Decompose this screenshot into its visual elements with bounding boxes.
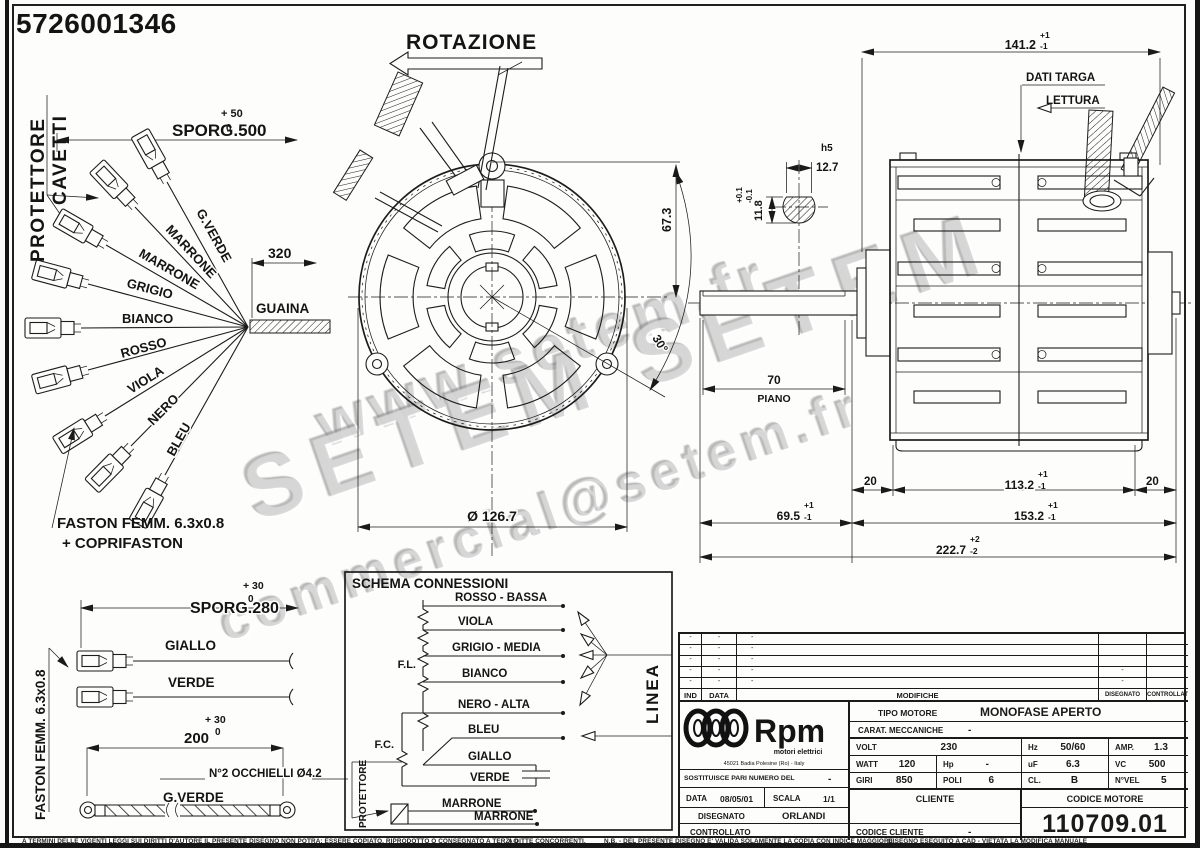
codice-motore-header: CODICE MOTORE [1022, 790, 1188, 808]
dim-70-text: 70 [767, 373, 781, 387]
lettura-label: LETTURA [1046, 95, 1100, 107]
footer-legal-4: DISEGNO ESEGUITO A CAD - VIETATA LA MODI… [888, 838, 1087, 845]
faston-note-1: FASTON FEMM. 6.3x0.8 [57, 515, 224, 532]
rev-cell: - [702, 667, 737, 678]
cl-cell: CL. B [1022, 773, 1109, 790]
logo-address: 45021 Badia Polesine (Ro) - Italy [724, 761, 805, 767]
sostituisce-cell: SOSTITUISCE PARI NUMERO DEL - [680, 770, 850, 788]
rev-cell: - [702, 656, 737, 667]
schema-fl: F.L. [398, 659, 416, 671]
rev-cell: - [1099, 667, 1147, 678]
cl-value: B [1041, 775, 1108, 786]
rev-header-controllato: CONTROLLATO [1147, 689, 1188, 702]
nvel-cell: N°VEL 5 [1109, 773, 1188, 790]
dim-sporg500: SPORG.500 + 50 0 [57, 108, 297, 152]
logo-cell: Rpm motori elettrici 45021 Badia Polesin… [680, 702, 850, 770]
cliente-label: CLIENTE [850, 790, 1020, 804]
codice-motore-value: 110709.01 [1022, 808, 1188, 839]
dim-200-tolm: 0 [215, 727, 221, 738]
dim-69-tolp: +1 [804, 500, 814, 510]
sporg500-tolp: + 50 [221, 108, 243, 120]
schema-protettore: PROTETTORE [358, 760, 369, 828]
rev-cell: - [680, 678, 702, 689]
schema-linea: LINEA [643, 663, 662, 724]
schema-nero: NERO - ALTA [458, 699, 530, 711]
wire-label-rosso: ROSSO [119, 334, 168, 361]
uf-label: uF [1022, 760, 1038, 769]
rev-header-data: DATA [702, 689, 737, 702]
disegnato-cell: DISEGNATO ORLANDI [680, 808, 850, 824]
sostituisce-label: SOSTITUISCE PARI NUMERO DEL [684, 775, 795, 782]
sostituisce-value: - [828, 774, 831, 785]
dim-20l-text: 20 [864, 476, 877, 488]
rotation-callout: ROTAZIONE [390, 31, 542, 75]
footer-legal-1: A TERMINI DELLE VIGENTI LEGGI SUI DIRITT… [22, 838, 518, 845]
rev-header-ind: IND [680, 689, 702, 702]
dati-targa-label: DATI TARGA [1026, 72, 1095, 84]
dim-222-tolp: +2 [970, 534, 980, 544]
schema-rosso: ROSSO - BASSA [455, 592, 547, 604]
rev-header-disegnato: DISEGNATO [1099, 689, 1147, 702]
wire-label-bianco: BIANCO [122, 311, 173, 326]
giri-label: GIRI [850, 776, 872, 785]
data-label: DATA [686, 794, 707, 803]
dim-141-tolm: -1 [1040, 41, 1048, 51]
dim-141-text: 141.2 [1005, 38, 1036, 52]
front-view [334, 62, 670, 556]
uf-cell: uF 6.3 [1022, 756, 1109, 773]
dim-200-tolp: + 30 [205, 714, 226, 726]
cl-label: CL. [1022, 776, 1041, 785]
scala-value: 1/1 [823, 794, 835, 804]
dim-222-tolm: -2 [970, 546, 978, 556]
sporg280-tolm: 0 [248, 594, 254, 605]
amp-value: 1.3 [1134, 742, 1188, 753]
giri-cell: GIRI 850 [850, 773, 937, 790]
schema-verde: VERDE [470, 772, 510, 784]
hz-cell: Hz 50/60 [1022, 739, 1109, 756]
rev-cell [1099, 656, 1147, 667]
rev-cell: - [737, 667, 1099, 678]
rev-cell: - [702, 634, 737, 645]
schema-fc: F.C. [374, 739, 394, 751]
footer-legal-2: A DITTE CONCORRENTI. [508, 838, 586, 845]
fit-h5-text: h5 [821, 143, 833, 154]
faston-note-2: + COPRIFASTON [62, 535, 183, 552]
rev-cell: - [737, 678, 1099, 689]
sporg500-tolm: 0 [226, 123, 232, 134]
scala-label: SCALA [773, 794, 801, 803]
rev-cell: - [702, 678, 737, 689]
rev-cell: - [737, 634, 1099, 645]
faston-note: FASTON FEMM. 6.3x0.8 + COPRIFASTON [52, 428, 224, 552]
drawing-sheet: www.setem.fr SETEM SETEM commercial@sete… [0, 0, 1200, 848]
uf-value: 6.3 [1038, 759, 1108, 770]
schema-bleu: BLEU [468, 724, 499, 736]
codice-cliente-value: - [968, 827, 971, 838]
nvel-value: 5 [1140, 775, 1188, 786]
rev-cell: - [737, 645, 1099, 656]
dim-153-text: 153.2 [1014, 509, 1044, 523]
piano-text: PIANO [757, 393, 790, 405]
dim-diameter: Ø 126.7 [358, 308, 627, 532]
rev-cell: - [680, 656, 702, 667]
sporg280-text: SPORG.280 [190, 600, 279, 617]
dim-30-text: 30° [649, 332, 671, 355]
title-block: - - - - - - - - - - - - - - - - - IND DA… [678, 632, 1186, 838]
watt-cell: WATT 120 [850, 756, 937, 773]
dim-69-text: 69.5 [777, 509, 801, 523]
rev-cell: - [680, 667, 702, 678]
data-cell: DATA 08/05/01 [680, 788, 765, 808]
dim-118-text: 11.8 [753, 200, 765, 221]
rotazione-label: ROTAZIONE [406, 31, 537, 54]
hz-value: 50/60 [1038, 742, 1108, 753]
dim-222-text: 222.7 [936, 543, 966, 557]
wire-label-nero: NERO [145, 391, 182, 428]
codice-motore-label: CODICE MOTORE [1022, 790, 1188, 804]
protettore-label: PROTETTORE [28, 118, 49, 263]
dim-113-text: 113.2 [1005, 478, 1035, 492]
wire-label-bleu: BLEU [164, 420, 194, 458]
disegnato-label: DISEGNATO [698, 812, 745, 821]
nvel-label: N°VEL [1109, 776, 1140, 785]
codice-motore-cell: 110709.01 [1022, 808, 1188, 840]
rev-cell [1147, 656, 1188, 667]
guaina-callout: GUAINA 320 [250, 245, 330, 333]
watt-value: 120 [878, 759, 936, 770]
logo-text: Rpm [754, 713, 825, 749]
amp-cell: AMP. 1.3 [1109, 739, 1188, 756]
rev-cell: - [680, 645, 702, 656]
dim-320-text: 320 [268, 245, 292, 261]
dim-flat: 70 PIANO [703, 320, 845, 405]
poli-label: POLI [937, 776, 962, 785]
rev-cell: - [1099, 678, 1147, 689]
tipo-motore-cell: TIPO MOTORE MONOFASE APERTO [850, 702, 1188, 722]
rev-cell [1147, 667, 1188, 678]
vc-cell: VC 500 [1109, 756, 1188, 773]
logo-sub: motori elettrici [774, 749, 823, 756]
dim-69-tolm: -1 [804, 512, 812, 522]
carat-cell: CARAT. MECCANICHE - [850, 722, 1188, 739]
dim-141-tolp: +1 [1040, 30, 1050, 40]
cavetti-label: CAVETTI [50, 115, 71, 205]
rev-cell [1147, 645, 1188, 656]
schema-grigio: GRIGIO - MEDIA [452, 642, 541, 654]
tol-p01: +0.1 [735, 187, 744, 203]
wire-label-viola: VIOLA [125, 362, 167, 396]
rev-cell: - [680, 634, 702, 645]
cliente-cell: CLIENTE [850, 790, 1022, 824]
scala-cell: SCALA 1/1 [765, 788, 850, 808]
data-value: 08/05/01 [720, 794, 753, 804]
connection-schema: SCHEMA CONNESSIONI [345, 572, 672, 830]
controllato-label: CONTROLLATO [690, 828, 751, 837]
faston-side-label: FASTON FEMM. 6.3x0.8 [33, 669, 48, 820]
volt-cell: VOLT 230 [850, 739, 1022, 756]
giri-value: 850 [872, 775, 936, 786]
dim-153-tolp: +1 [1048, 500, 1058, 510]
occhielli-label: N°2 OCCHIELLI Ø4.2 [209, 768, 322, 780]
tipo-label: TIPO MOTORE [878, 708, 937, 718]
tol-m01: -0.1 [745, 189, 754, 203]
disegnato-value: ORLANDI [782, 811, 825, 822]
schema-viola: VIOLA [458, 616, 493, 628]
diameter-text: Ø 126.7 [467, 508, 517, 524]
guaina-label: GUAINA [256, 301, 309, 316]
wire-label-grigio: GRIGIO [125, 275, 174, 302]
carat-label: CARAT. MECCANICHE [858, 726, 943, 735]
poli-cell: POLI 6 [937, 773, 1022, 790]
hz-label: Hz [1022, 743, 1038, 752]
watt-label: WATT [850, 760, 878, 769]
volt-label: VOLT [850, 743, 877, 752]
schema-title: SCHEMA CONNESSIONI [352, 576, 508, 591]
hp-value: - [954, 759, 1021, 770]
vc-value: 500 [1126, 759, 1188, 770]
carat-value: - [968, 725, 971, 736]
amp-label: AMP. [1109, 743, 1134, 752]
rev-cell [1147, 678, 1188, 689]
rev-cell: - [702, 645, 737, 656]
hp-label: Hp [937, 760, 954, 769]
part-number: 5726001346 [16, 8, 177, 39]
schema-bianco: BIANCO [462, 668, 507, 680]
rev-cell [1099, 645, 1147, 656]
dim-113-tolp: +1 [1038, 469, 1048, 479]
tipo-value: MONOFASE APERTO [980, 705, 1101, 719]
vc-label: VC [1109, 760, 1126, 769]
dim-200-text: 200 [184, 730, 209, 747]
footer-legal-3: N.B. - DEL PRESENTE DISEGNO E' VALIDA SO… [604, 838, 895, 845]
rev-cell [1147, 634, 1188, 645]
rev-header-modifiche: MODIFICHE [737, 689, 1099, 702]
poli-value: 6 [962, 775, 1021, 786]
dim-20r-text: 20 [1146, 476, 1159, 488]
rev-cell [1099, 634, 1147, 645]
schema-giallo: GIALLO [468, 751, 511, 763]
dim-height-angle: 67.3 30° [492, 162, 691, 397]
dim-67-text: 67.3 [660, 208, 674, 232]
sporg500-text: SPORG.500 [172, 121, 267, 140]
dim-127-text: 12.7 [816, 162, 838, 174]
schema-marrone2: MARRONE [474, 811, 534, 823]
rev-cell: - [737, 656, 1099, 667]
sporg280-tolp: + 30 [243, 580, 264, 592]
dim-153-tolm: -1 [1048, 512, 1056, 522]
dim-113-tolm: -1 [1038, 481, 1046, 491]
lower-harness: FASTON FEMM. 6.3x0.8 SPORG.280 + 30 0 GI… [33, 580, 348, 820]
rpm-logo: Rpm motori elettrici 45021 Badia Polesin… [680, 702, 848, 768]
verde-label: VERDE [168, 675, 215, 690]
hp-cell: Hp - [937, 756, 1022, 773]
codice-cliente-label: CODICE CLIENTE [856, 828, 924, 837]
giallo-label: GIALLO [165, 638, 216, 653]
schema-marrone1: MARRONE [442, 798, 502, 810]
volt-value: 230 [877, 742, 1021, 753]
